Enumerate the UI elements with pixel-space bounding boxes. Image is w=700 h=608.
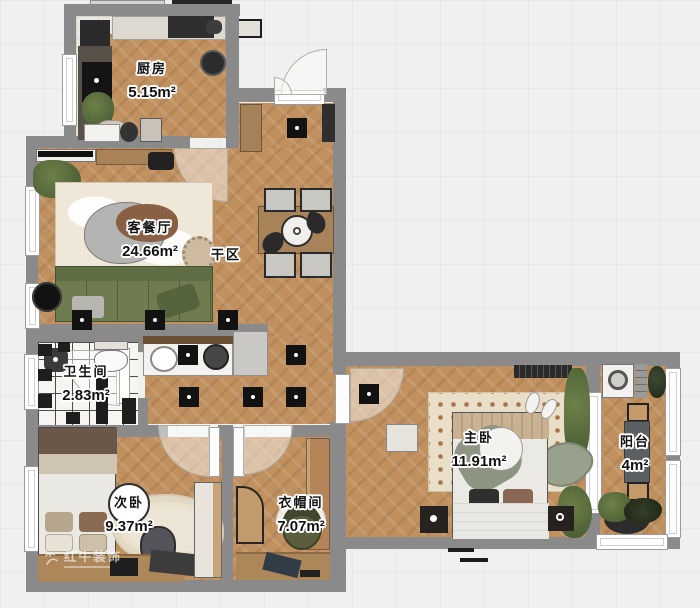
ceiling-light xyxy=(218,310,238,330)
balcony-plant xyxy=(648,366,666,398)
room-label-bathroom: 卫生间 2.83m² xyxy=(62,365,110,403)
dining-chair xyxy=(300,252,332,278)
room-area: 24.66m² xyxy=(122,244,178,259)
window xyxy=(665,368,681,456)
wall xyxy=(218,425,233,437)
watermark: 红牛装饰 xyxy=(44,551,122,568)
round-burner xyxy=(200,50,226,76)
master-door-leaf xyxy=(335,374,350,424)
platter-center xyxy=(293,227,301,235)
floor-plan-canvas: 厨房 5.15m² 客餐厅 24.66m² 干区 卫生间 2.83m² 次卧 9… xyxy=(0,0,700,608)
bed-second xyxy=(38,427,116,558)
bathroom-sink-dot xyxy=(53,357,58,362)
ceiling-light xyxy=(179,387,199,407)
window xyxy=(62,54,77,126)
window xyxy=(24,354,39,410)
hall-cabinet xyxy=(233,331,268,376)
wall xyxy=(222,437,233,580)
black-tile xyxy=(122,398,136,424)
wall xyxy=(64,4,240,16)
ceiling-light xyxy=(286,345,306,365)
bed-blanket-band xyxy=(39,428,117,454)
ceiling-light xyxy=(243,387,263,407)
nightstand-dot xyxy=(556,513,564,521)
room-name: 衣帽间 xyxy=(277,496,325,509)
desk-item xyxy=(300,570,320,577)
fridge xyxy=(80,20,110,48)
window xyxy=(24,466,39,552)
ceiling-light xyxy=(359,384,379,404)
room-area: 9.37m² xyxy=(105,519,153,534)
toilet-tank xyxy=(94,341,128,350)
dining-chair xyxy=(264,252,296,278)
black-tile xyxy=(38,394,52,408)
dresser xyxy=(386,424,418,452)
wall xyxy=(340,352,602,366)
nightstand-dot xyxy=(430,515,437,522)
window xyxy=(25,186,40,256)
bed-pillow xyxy=(79,512,107,532)
room-area: 11.91m² xyxy=(451,454,506,469)
room-area: 7.07m² xyxy=(277,519,325,534)
room-label-master-bedroom: 主卧 11.91m² xyxy=(451,431,506,469)
room-name: 阳台 xyxy=(620,435,650,448)
wardrobe-second-bedroom xyxy=(194,482,222,578)
room-label-kitchen: 厨房 5.15m² xyxy=(128,62,176,100)
cloakroom-counter xyxy=(236,486,264,544)
wall xyxy=(228,88,274,102)
balcony-stool xyxy=(627,403,649,422)
wash-basin xyxy=(150,346,178,372)
black-tile xyxy=(38,369,52,381)
laundry-basket xyxy=(203,344,229,370)
black-tile xyxy=(66,412,80,424)
floor-lamp xyxy=(32,282,62,312)
ac-unit xyxy=(514,365,572,378)
room-name: 客餐厅 xyxy=(122,221,178,234)
tv xyxy=(38,151,93,157)
console-box xyxy=(148,152,174,170)
ceiling-light xyxy=(287,118,307,138)
dimension-dash xyxy=(460,558,488,562)
dining-chair xyxy=(300,188,332,212)
black-tile xyxy=(58,342,70,352)
brand-bull-icon xyxy=(44,551,60,567)
room-name: 主卧 xyxy=(451,431,506,444)
room-area: 2.83m² xyxy=(62,388,110,403)
kitchen-sink-unit xyxy=(84,124,120,142)
dimension-dash xyxy=(448,548,474,552)
bed-pillow xyxy=(45,512,73,532)
room-label-balcony: 阳台 4m² xyxy=(620,435,650,473)
balcony-shelf xyxy=(635,364,647,398)
window xyxy=(596,534,668,550)
ceiling-light xyxy=(72,310,92,330)
room-area: 5.15m² xyxy=(128,85,176,100)
room-name: 干区 xyxy=(211,248,241,261)
watermark-subline xyxy=(64,566,110,568)
room-label-cloakroom: 衣帽间 7.07m² xyxy=(277,496,325,534)
dining-chair xyxy=(264,188,296,212)
wall-device xyxy=(322,104,335,142)
wall xyxy=(226,4,239,148)
kitchen-pot xyxy=(206,20,222,34)
entry-cabinet xyxy=(240,104,262,152)
room-name: 卫生间 xyxy=(62,365,110,378)
room-name: 次卧 xyxy=(105,496,153,509)
ceiling-light xyxy=(286,387,306,407)
kitchen-pan xyxy=(120,122,138,142)
room-name: 厨房 xyxy=(128,62,176,75)
bed-sheet-band xyxy=(39,454,117,474)
cooktop-dot xyxy=(94,78,99,83)
room-label-dry-zone: 干区 xyxy=(211,248,241,261)
small-appliance xyxy=(140,118,162,142)
washer-drum xyxy=(608,370,628,390)
black-tile xyxy=(38,344,52,356)
room-label-living-dining: 客餐厅 24.66m² xyxy=(122,221,178,259)
room-label-second-bedroom: 次卧 9.37m² xyxy=(105,496,153,534)
window xyxy=(665,460,681,538)
watermark-text: 红牛装饰 xyxy=(64,551,122,564)
vanity-shelf-strip xyxy=(143,336,233,344)
ceiling-light xyxy=(145,310,165,330)
room-area: 4m² xyxy=(620,458,650,473)
wall xyxy=(330,422,346,592)
ceiling-light xyxy=(178,345,198,365)
bed-duvet xyxy=(453,503,549,539)
